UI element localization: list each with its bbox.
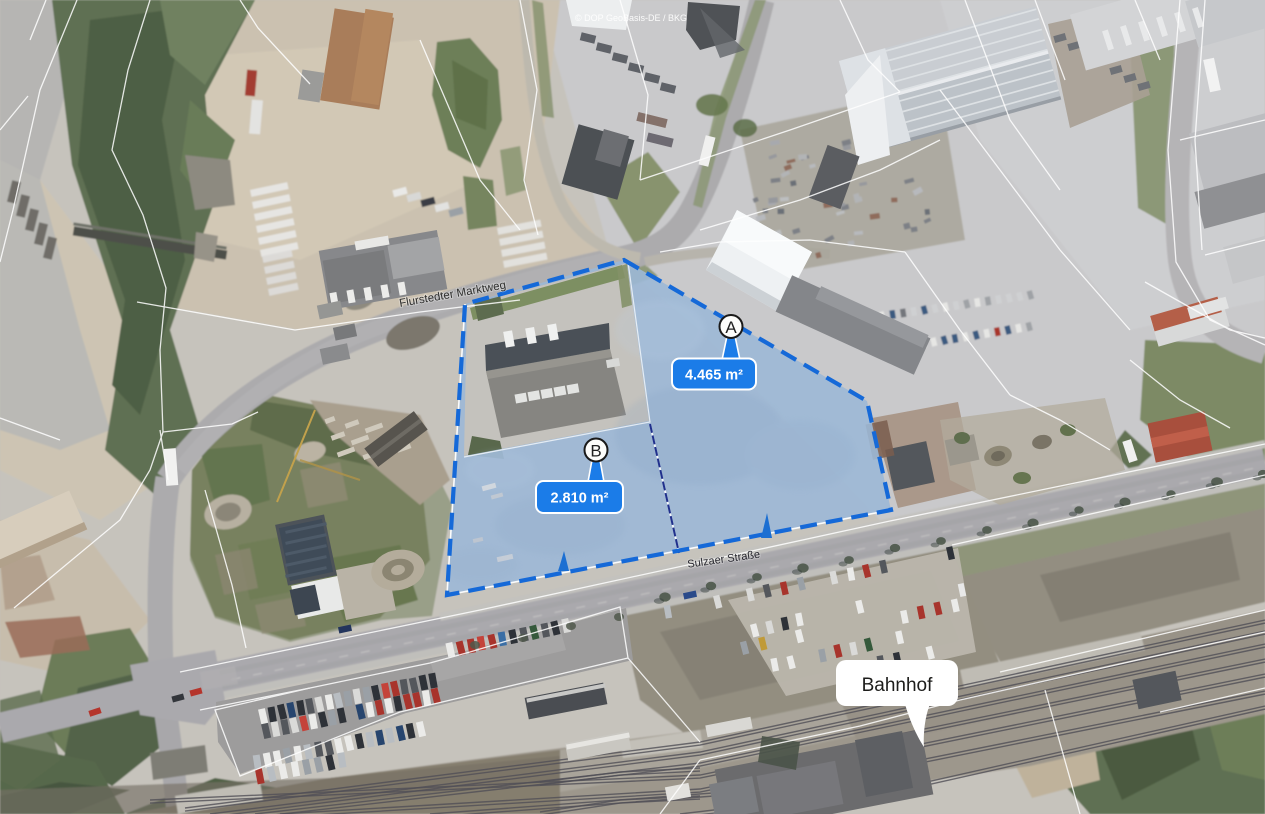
- svg-text:2.810 m²: 2.810 m²: [550, 491, 608, 507]
- svg-text:4.465 m²: 4.465 m²: [685, 368, 743, 384]
- svg-text:A: A: [725, 318, 737, 337]
- svg-text:B: B: [590, 442, 601, 461]
- svg-text:© DOP GeoBasis-DE / BKG: © DOP GeoBasis-DE / BKG: [575, 13, 687, 23]
- svg-text:Bahnhof: Bahnhof: [862, 675, 934, 696]
